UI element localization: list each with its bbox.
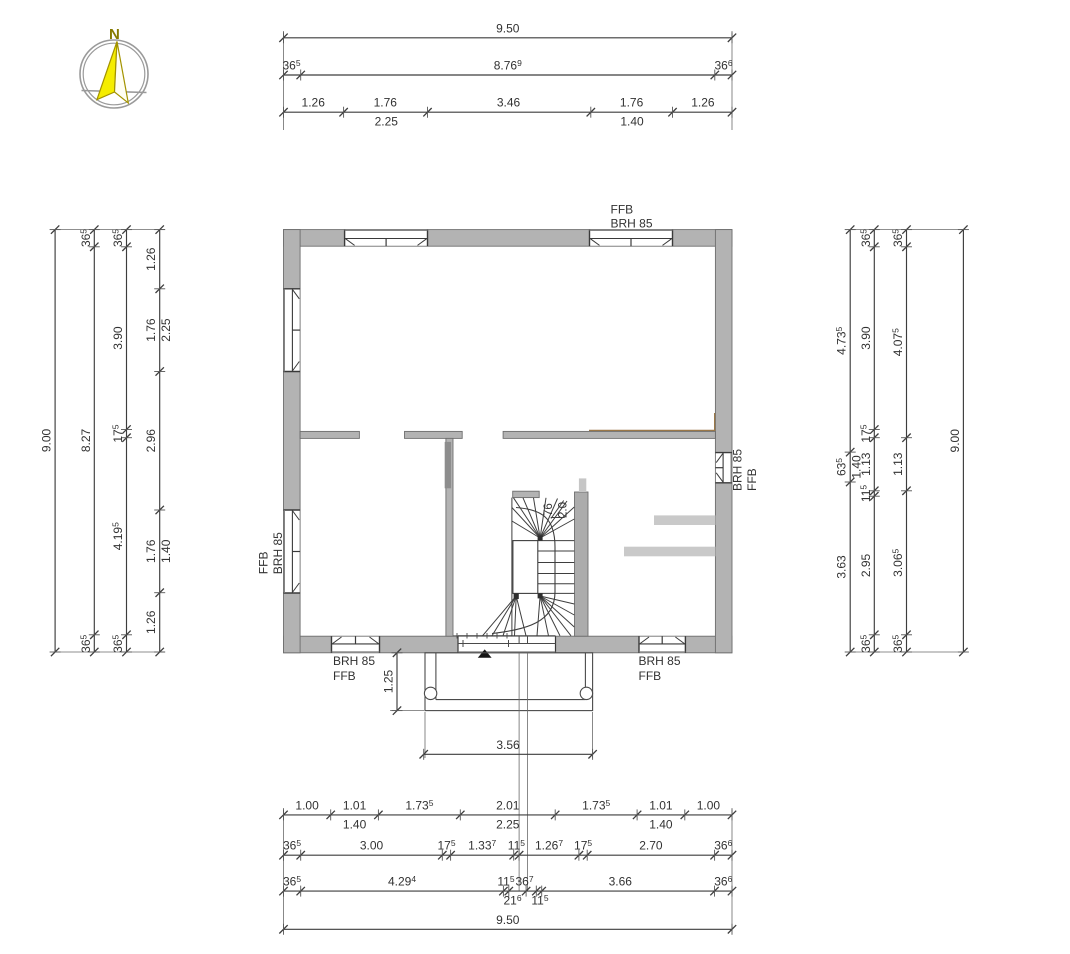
svg-text:FFB: FFB: [611, 203, 634, 217]
svg-text:8.27: 8.27: [79, 428, 93, 452]
svg-text:BRH 85: BRH 85: [639, 654, 681, 668]
svg-text:N: N: [109, 26, 120, 43]
svg-text:1.76: 1.76: [374, 96, 398, 110]
svg-text:76: 76: [543, 503, 555, 516]
svg-text:1.76: 1.76: [144, 539, 158, 563]
svg-text:3.56: 3.56: [496, 738, 520, 752]
svg-text:9.00: 9.00: [948, 429, 962, 453]
svg-text:FFB: FFB: [257, 552, 271, 575]
svg-text:1.40: 1.40: [620, 115, 644, 129]
svg-text:1.26: 1.26: [144, 610, 158, 634]
svg-text:2.95: 2.95: [859, 553, 873, 577]
svg-text:2.70: 2.70: [639, 839, 663, 853]
svg-text:2.01: 2.01: [496, 798, 520, 812]
svg-text:1.76: 1.76: [620, 96, 644, 110]
svg-text:9.50: 9.50: [496, 21, 520, 35]
svg-text:3.66: 3.66: [609, 875, 633, 889]
svg-text:2.25: 2.25: [496, 817, 520, 831]
svg-text:BRH 85: BRH 85: [271, 532, 285, 574]
svg-text:1.01: 1.01: [343, 798, 367, 812]
svg-text:3.90: 3.90: [859, 326, 873, 350]
svg-text:1.00: 1.00: [697, 798, 721, 812]
svg-text:2.25: 2.25: [375, 115, 399, 129]
svg-text:1.40: 1.40: [649, 817, 673, 831]
svg-text:9.00: 9.00: [40, 428, 54, 452]
svg-text:FFB: FFB: [745, 468, 759, 491]
svg-text:FFB: FFB: [333, 669, 356, 683]
svg-text:1.26: 1.26: [691, 96, 715, 110]
svg-text:1.40: 1.40: [159, 539, 173, 563]
svg-text:1.01: 1.01: [649, 798, 673, 812]
svg-text:1.26: 1.26: [302, 96, 326, 110]
svg-text:FFB: FFB: [639, 669, 662, 683]
svg-text:3.63: 3.63: [835, 555, 849, 579]
svg-text:1.25: 1.25: [382, 669, 396, 693]
svg-text:1.76: 1.76: [144, 318, 158, 342]
svg-text:BRH 85: BRH 85: [333, 654, 375, 668]
svg-text:3.00: 3.00: [360, 839, 384, 853]
svg-text:1.13: 1.13: [859, 452, 873, 476]
svg-text:3.90: 3.90: [111, 326, 125, 350]
svg-text:2.25: 2.25: [159, 318, 173, 342]
svg-text:3.46: 3.46: [497, 96, 521, 110]
svg-text:1.26: 1.26: [144, 247, 158, 271]
svg-text:1.40: 1.40: [343, 817, 367, 831]
svg-text:2.96: 2.96: [144, 429, 158, 453]
svg-text:1.13: 1.13: [891, 452, 905, 476]
svg-text:9.50: 9.50: [496, 913, 520, 927]
svg-text:BRH 85: BRH 85: [731, 449, 745, 491]
svg-text:BRH 85: BRH 85: [611, 217, 653, 231]
svg-text:2.0: 2.0: [558, 502, 570, 518]
svg-text:1.00: 1.00: [295, 798, 319, 812]
